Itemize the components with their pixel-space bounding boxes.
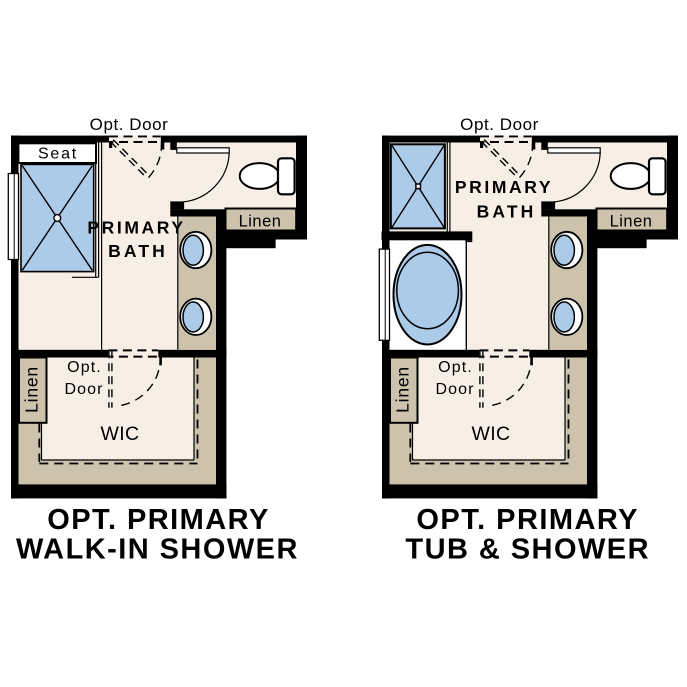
svg-text:PRIMARY: PRIMARY [87, 217, 185, 237]
svg-text:Linen: Linen [239, 213, 282, 231]
svg-text:Seat: Seat [38, 146, 78, 163]
svg-text:Linen: Linen [610, 213, 653, 231]
svg-text:Linen: Linen [22, 366, 42, 413]
svg-text:OPT. PRIMARY: OPT. PRIMARY [416, 504, 639, 536]
svg-text:TUB & SHOWER: TUB & SHOWER [405, 534, 650, 566]
svg-text:Opt.: Opt. [67, 359, 102, 376]
svg-text:Opt. Door: Opt. Door [460, 115, 539, 134]
svg-text:BATH: BATH [108, 241, 168, 261]
svg-text:WALK-IN SHOWER: WALK-IN SHOWER [16, 534, 299, 566]
svg-text:OPT. PRIMARY: OPT. PRIMARY [47, 504, 270, 536]
svg-text:Opt.: Opt. [438, 359, 473, 376]
svg-text:WIC: WIC [100, 423, 139, 445]
svg-text:Opt. Door: Opt. Door [90, 115, 169, 134]
svg-text:Linen: Linen [393, 366, 413, 413]
svg-text:PRIMARY: PRIMARY [455, 177, 553, 197]
svg-text:Door: Door [64, 381, 103, 398]
svg-text:Door: Door [435, 381, 474, 398]
svg-text:WIC: WIC [471, 423, 510, 445]
svg-text:BATH: BATH [477, 202, 537, 222]
